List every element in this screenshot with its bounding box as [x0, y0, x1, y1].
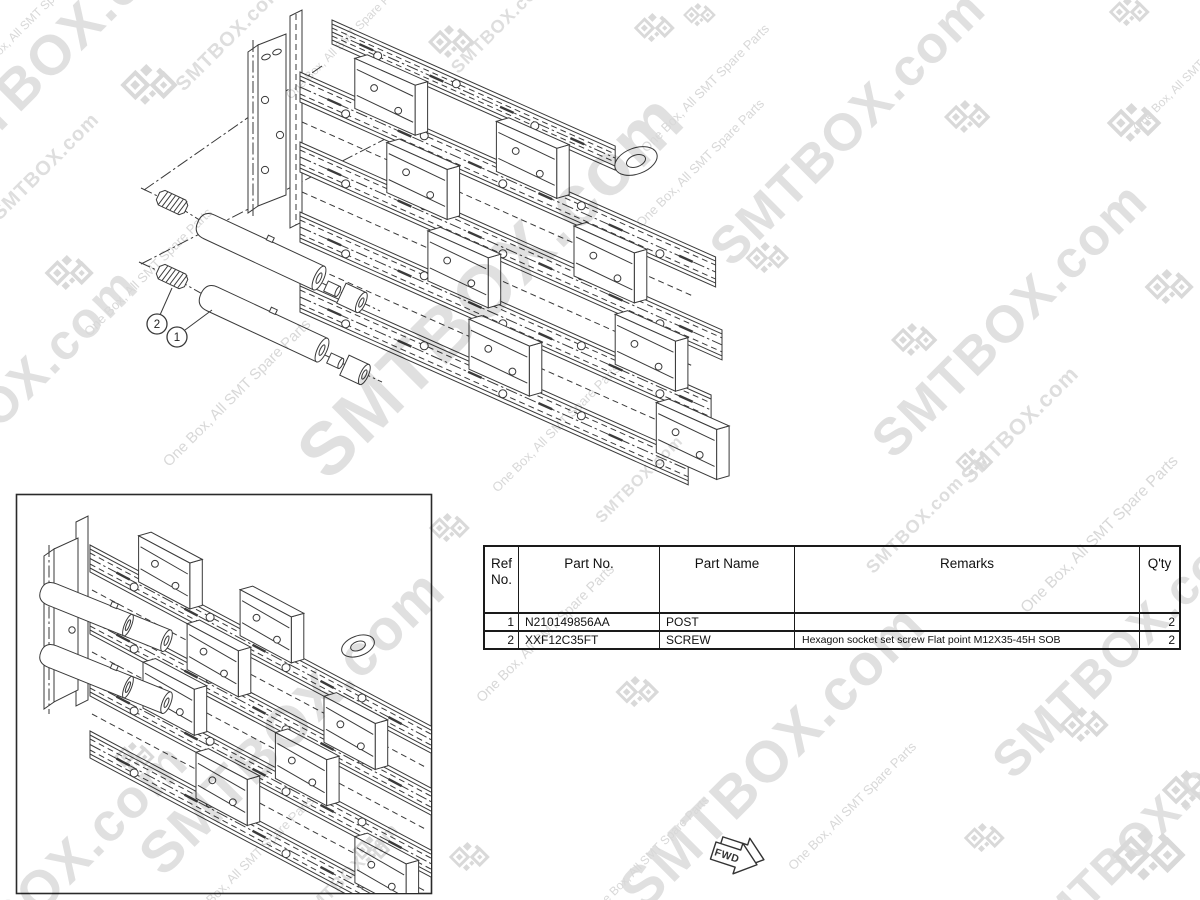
cell-qty: 2	[1140, 632, 1179, 648]
exploded-view-art	[139, 10, 729, 485]
cell-qty: 2	[1140, 614, 1179, 630]
col-header-qty: Q'ty	[1140, 547, 1179, 612]
parts-table: Ref No. Part No. Part Name Remarks Q'ty …	[483, 545, 1181, 650]
col-header-part-no: Part No.	[519, 547, 660, 612]
cell-ref: 1	[485, 614, 519, 630]
callout-leader-1	[185, 310, 212, 330]
screw-head-part	[324, 348, 372, 386]
mounting-plate	[290, 10, 302, 228]
cell-remarks	[795, 614, 1140, 630]
callout-balloon-1-label: 1	[174, 332, 180, 344]
col-header-part-name: Part Name	[660, 547, 795, 612]
set-screw-part	[155, 189, 190, 217]
cell-part-name: SCREW	[660, 632, 795, 648]
cell-part-no: XXF12C35FT	[519, 632, 660, 648]
mounting-plate	[248, 34, 286, 218]
col-header-remarks: Remarks	[795, 547, 1140, 612]
mounting-lug	[611, 141, 661, 180]
assembled-view-art	[37, 516, 448, 900]
parts-catalog-page: 2 1 FWD Ref No. Part No. Part Name Remar…	[0, 0, 1200, 900]
table-row: 2 XXF12C35FT SCREW Hexagon socket set sc…	[485, 630, 1179, 648]
set-screw-part	[155, 263, 190, 291]
diagram-artwork: 2 1 FWD	[0, 0, 1200, 900]
cell-part-no: N210149856AA	[519, 614, 660, 630]
col-header-ref-no: Ref No.	[485, 547, 519, 612]
mounting-lug	[339, 631, 378, 661]
table-row: 1 N210149856AA POST 2	[485, 612, 1179, 630]
fwd-direction-arrow: FWD	[708, 829, 769, 882]
cell-ref: 2	[485, 632, 519, 648]
callout-leader-2	[160, 288, 172, 315]
cell-part-name: POST	[660, 614, 795, 630]
cell-remarks: Hexagon socket set screw Flat point M12X…	[795, 632, 1140, 648]
mounting-plate	[44, 538, 78, 714]
parts-table-header-row: Ref No. Part No. Part Name Remarks Q'ty	[485, 547, 1179, 612]
callout-balloon-2-label: 2	[154, 319, 160, 331]
